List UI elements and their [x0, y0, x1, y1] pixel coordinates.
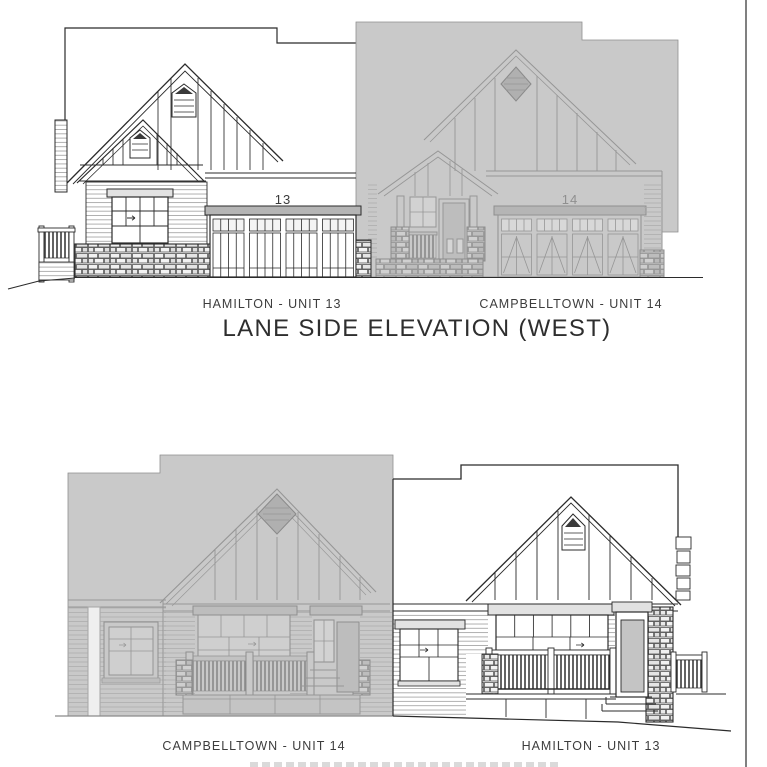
label-hamilton-unit13-bottom: HAMILTON - UNIT 13 — [522, 739, 661, 753]
label-campbelltown-unit14-bottom: CAMPBELLTOWN - UNIT 14 — [162, 739, 345, 753]
porch-post — [246, 652, 253, 695]
window-header — [107, 189, 173, 197]
porch-balusters — [406, 235, 436, 258]
porch-skirt — [183, 695, 360, 714]
porch-rail — [405, 232, 437, 235]
window-header — [193, 606, 297, 615]
backdrop-outline-right — [393, 465, 678, 537]
top-elevation-title: LANE SIDE ELEVATION (WEST) — [223, 315, 612, 342]
stone-chimney-column — [646, 607, 673, 722]
front-door — [621, 620, 644, 692]
stone-veneer — [75, 244, 212, 277]
porch-skirt — [466, 694, 616, 719]
label-hamilton-unit13-top: HAMILTON - UNIT 13 — [203, 297, 342, 311]
backdrop-outline-left — [65, 28, 356, 122]
deck-post — [702, 652, 707, 692]
porch-post — [548, 648, 554, 694]
garage-header — [494, 206, 646, 215]
elevation-drawing-canvas: 13 14 HAMILTON - UNIT 13 CAMPBELLTOWN - … — [0, 0, 767, 767]
stone-pier — [176, 660, 192, 695]
front-door — [337, 622, 359, 692]
eave-line — [205, 173, 356, 178]
window-header — [488, 604, 614, 615]
garage-header — [205, 206, 361, 215]
door-header — [310, 606, 362, 615]
architectural-elevation-sheet: 13 14 HAMILTON - UNIT 13 CAMPBELLTOWN - … — [0, 0, 767, 767]
label-campbelltown-unit14-top: CAMPBELLTOWN - UNIT 14 — [479, 297, 662, 311]
porch-post — [610, 648, 616, 694]
hamilton-unit13-street-elevation — [393, 479, 731, 731]
window-header — [395, 620, 465, 629]
street-side-elevation-drawing: CAMPBELLTOWN - UNIT 14 HAMILTON - UNIT 1… — [55, 455, 731, 765]
door-header — [612, 602, 652, 612]
stone-pier — [356, 240, 371, 277]
garage-number-14: 14 — [562, 192, 578, 207]
deck-balusters — [44, 232, 69, 258]
stone-base — [376, 259, 483, 277]
ground-line — [393, 716, 731, 731]
side-trim — [55, 120, 67, 192]
deck-skirt — [39, 262, 74, 280]
corner-trim — [88, 607, 100, 716]
ground-line — [8, 278, 703, 290]
chimney-blocks — [676, 537, 691, 600]
stone-pier — [467, 227, 485, 261]
roof-gable — [466, 497, 681, 605]
stone-pier — [640, 250, 664, 277]
stone-pier — [482, 654, 498, 694]
porch-post — [307, 652, 314, 695]
deck-rail — [38, 228, 75, 232]
stone-pier — [391, 227, 409, 261]
lane-side-elevation-drawing: 13 14 HAMILTON - UNIT 13 CAMPBELLTOWN - … — [8, 22, 703, 342]
deck-balusters — [674, 660, 704, 688]
garage-number-13: 13 — [275, 192, 291, 207]
eave-line — [393, 604, 466, 611]
deck-post — [671, 652, 676, 692]
